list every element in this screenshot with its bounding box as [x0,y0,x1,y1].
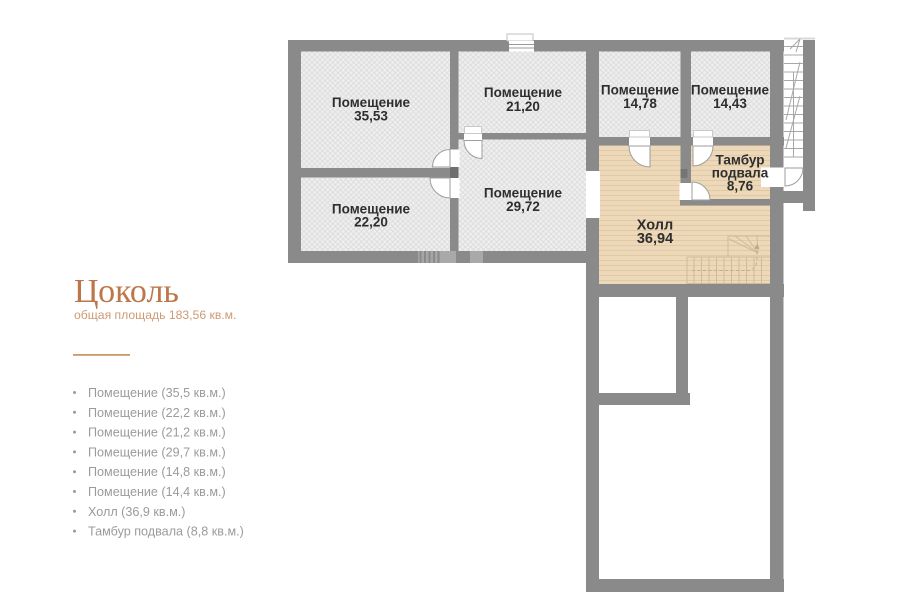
svg-text:Тамбур подвала (8,8 кв.м.): Тамбур подвала (8,8 кв.м.) [88,525,244,539]
svg-text:Цоколь: Цоколь [74,273,179,310]
svg-text:Помещение (35,5 кв.м.): Помещение (35,5 кв.м.) [88,386,226,400]
svg-text:Помещение (29,7 кв.м.): Помещение (29,7 кв.м.) [88,445,226,459]
svg-text:8,76: 8,76 [727,179,754,194]
svg-text:21,20: 21,20 [506,99,540,114]
svg-text:Помещение (22,2 кв.м.): Помещение (22,2 кв.м.) [88,406,226,420]
svg-text:Помещение (21,2 кв.м.): Помещение (21,2 кв.м.) [88,426,226,440]
svg-text:29,72: 29,72 [506,199,540,214]
svg-text:Помещение (14,4 кв.м.): Помещение (14,4 кв.м.) [88,485,226,499]
svg-text:14,43: 14,43 [713,96,747,111]
svg-text:36,94: 36,94 [637,231,673,247]
svg-text:Помещение: Помещение [484,85,563,100]
svg-text:35,53: 35,53 [354,109,388,124]
svg-text:Холл (36,9 кв.м.): Холл (36,9 кв.м.) [88,505,185,519]
svg-text:14,78: 14,78 [623,96,657,111]
svg-text:общая площадь 183,56 кв.м.: общая площадь 183,56 кв.м. [74,308,236,322]
svg-text:Помещение (14,8 кв.м.): Помещение (14,8 кв.м.) [88,465,226,479]
svg-text:22,20: 22,20 [354,215,388,230]
